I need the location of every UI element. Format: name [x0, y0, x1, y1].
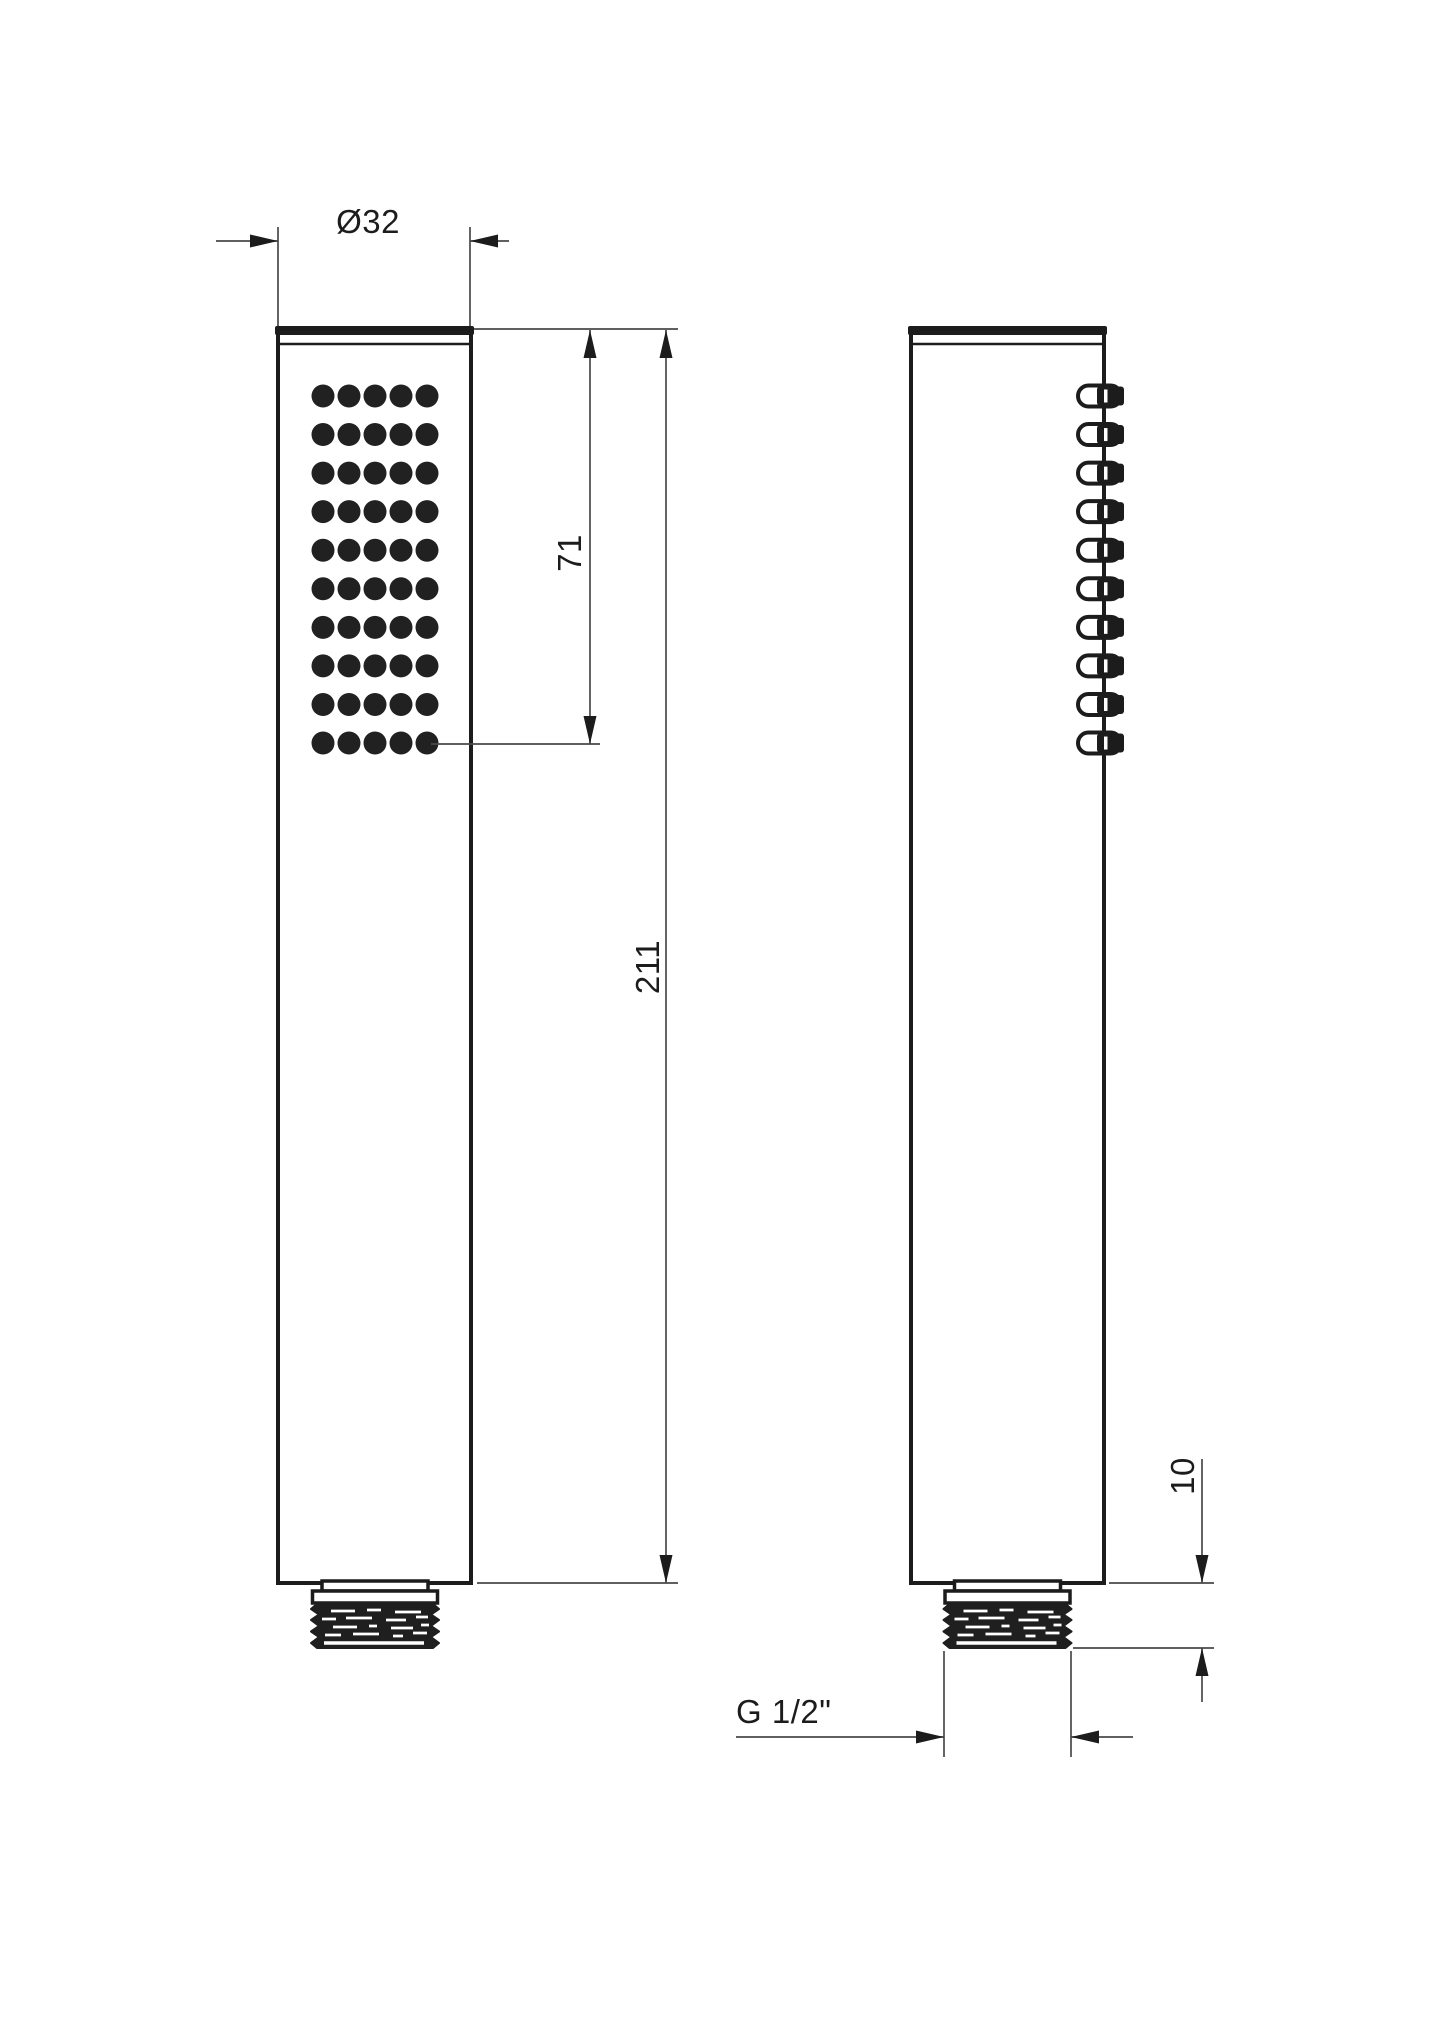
spray-hole-dot: [416, 500, 439, 523]
spray-hole-dot: [338, 385, 361, 408]
spray-hole-dot: [338, 616, 361, 639]
spray-hole-dot: [364, 385, 387, 408]
spray-hole-dot: [312, 500, 335, 523]
arrowhead: [660, 1555, 673, 1583]
spray-hole-dot: [364, 423, 387, 446]
spray-hole-dot: [390, 462, 413, 485]
spray-hole-dot: [416, 577, 439, 600]
side-view-top-cap: [908, 326, 1107, 335]
arrowhead: [1071, 1731, 1099, 1744]
spray-hole-dot: [338, 500, 361, 523]
spray-hole-dot: [416, 423, 439, 446]
spray-hole-dot: [312, 423, 335, 446]
dimension-thread-spec: G 1/2": [736, 1651, 1133, 1757]
spray-hole-dot: [416, 539, 439, 562]
spray-hole-dot: [390, 500, 413, 523]
spray-hole-dot: [312, 693, 335, 716]
spray-hole-dot: [364, 654, 387, 677]
dim-face-length-label: 71: [551, 534, 588, 572]
side-nozzle: [1078, 655, 1124, 676]
side-nozzle: [1078, 424, 1124, 445]
side-nozzle: [1078, 694, 1124, 715]
side-nozzle: [1078, 386, 1124, 407]
spray-hole-dot: [312, 654, 335, 677]
side-nozzle: [1078, 501, 1124, 522]
spray-hole-dot: [390, 539, 413, 562]
spray-hole-dot: [338, 577, 361, 600]
spray-hole-dot: [390, 654, 413, 677]
spray-hole-dot: [338, 539, 361, 562]
spray-hole-dot: [416, 616, 439, 639]
side-nozzle: [1078, 617, 1124, 638]
shower-handset-technical-drawing: Ø32 71 211 10 G 1/2": [0, 0, 1445, 2043]
dimension-total-length: 211: [477, 330, 678, 1583]
dim-total-length-label: 211: [629, 940, 666, 994]
arrowhead: [916, 1731, 944, 1744]
spray-hole-dot: [338, 732, 361, 755]
spray-hole-dot: [364, 693, 387, 716]
spray-hole-dot: [312, 577, 335, 600]
spray-hole-dot: [364, 539, 387, 562]
arrowhead: [250, 235, 278, 248]
side-nozzle: [1078, 578, 1124, 599]
spray-hole-dot: [338, 423, 361, 446]
spray-hole-dot: [338, 693, 361, 716]
side-nozzle: [1078, 733, 1124, 754]
front-view: [275, 326, 474, 1648]
spray-hole-dot: [390, 616, 413, 639]
front-view-top-cap: [275, 326, 474, 335]
arrowhead: [660, 330, 673, 358]
spray-hole-dot: [364, 577, 387, 600]
spray-hole-dot: [416, 732, 439, 755]
dim-thread-spec-label: G 1/2": [736, 1693, 831, 1730]
spray-hole-dot: [312, 539, 335, 562]
front-view-outlet-thread: [311, 1581, 439, 1648]
arrowhead: [1196, 1648, 1209, 1676]
spray-hole-dot: [364, 462, 387, 485]
spray-hole-dot: [416, 654, 439, 677]
spray-hole-dot: [390, 385, 413, 408]
spray-hole-dot: [364, 500, 387, 523]
spray-hole-dot: [390, 577, 413, 600]
spray-hole-dot: [312, 385, 335, 408]
side-view-outlet-thread: [944, 1581, 1072, 1648]
spray-hole-dot: [416, 693, 439, 716]
spray-hole-dot: [390, 693, 413, 716]
arrowhead: [1196, 1555, 1209, 1583]
dim-diameter-label: Ø32: [336, 203, 400, 240]
spray-hole-dot: [338, 654, 361, 677]
spray-hole-dot: [312, 462, 335, 485]
side-view-handle-body: [911, 331, 1104, 1583]
dimension-diameter: Ø32: [216, 203, 509, 326]
spray-hole-dot: [364, 732, 387, 755]
arrowhead: [584, 330, 597, 358]
drawing-canvas: Ø32 71 211 10 G 1/2": [0, 0, 1445, 2043]
spray-hole-dot: [312, 616, 335, 639]
arrowhead: [470, 235, 498, 248]
dim-thread-length-label: 10: [1164, 1457, 1201, 1495]
spray-hole-dot: [390, 732, 413, 755]
side-nozzle: [1078, 540, 1124, 561]
spray-hole-dot: [312, 732, 335, 755]
spray-hole-dot: [364, 616, 387, 639]
spray-hole-dot: [390, 423, 413, 446]
spray-hole-dot: [416, 385, 439, 408]
side-nozzle: [1078, 463, 1124, 484]
spray-hole-dot: [416, 462, 439, 485]
arrowhead: [584, 716, 597, 744]
spray-hole-dot: [338, 462, 361, 485]
side-view: [908, 326, 1124, 1648]
